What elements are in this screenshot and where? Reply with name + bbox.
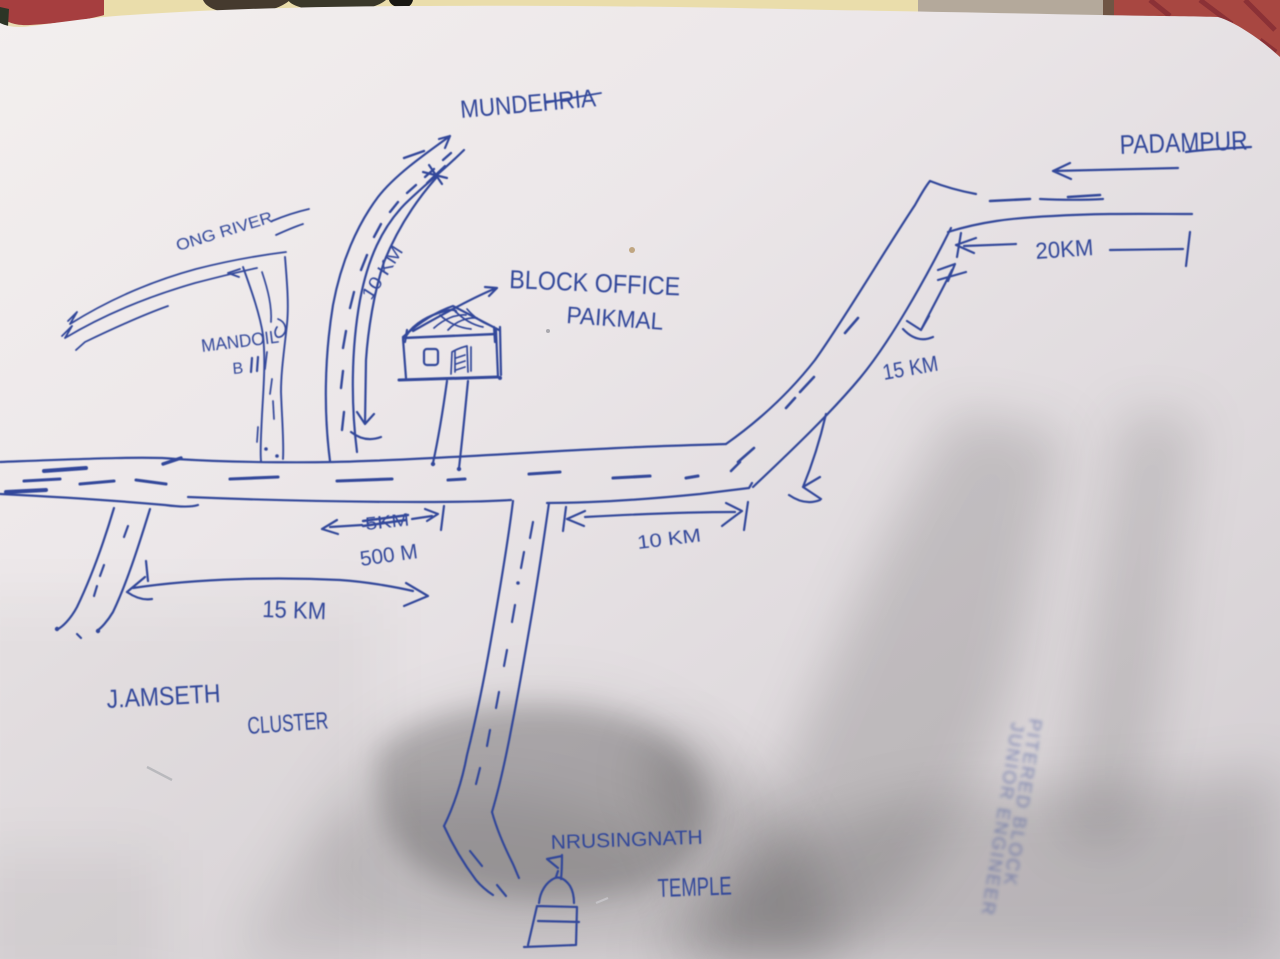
svg-text:15 KM: 15 KM <box>262 596 327 625</box>
svg-text:CLUSTER: CLUSTER <box>247 707 330 740</box>
svg-text:PADAMPUR: PADAMPUR <box>1119 126 1248 160</box>
svg-text:B: B <box>232 360 244 378</box>
svg-text:TEMPLE: TEMPLE <box>657 870 732 903</box>
svg-text:J.AMSETH: J.AMSETH <box>106 678 221 714</box>
svg-text:20KM: 20KM <box>1035 234 1095 264</box>
